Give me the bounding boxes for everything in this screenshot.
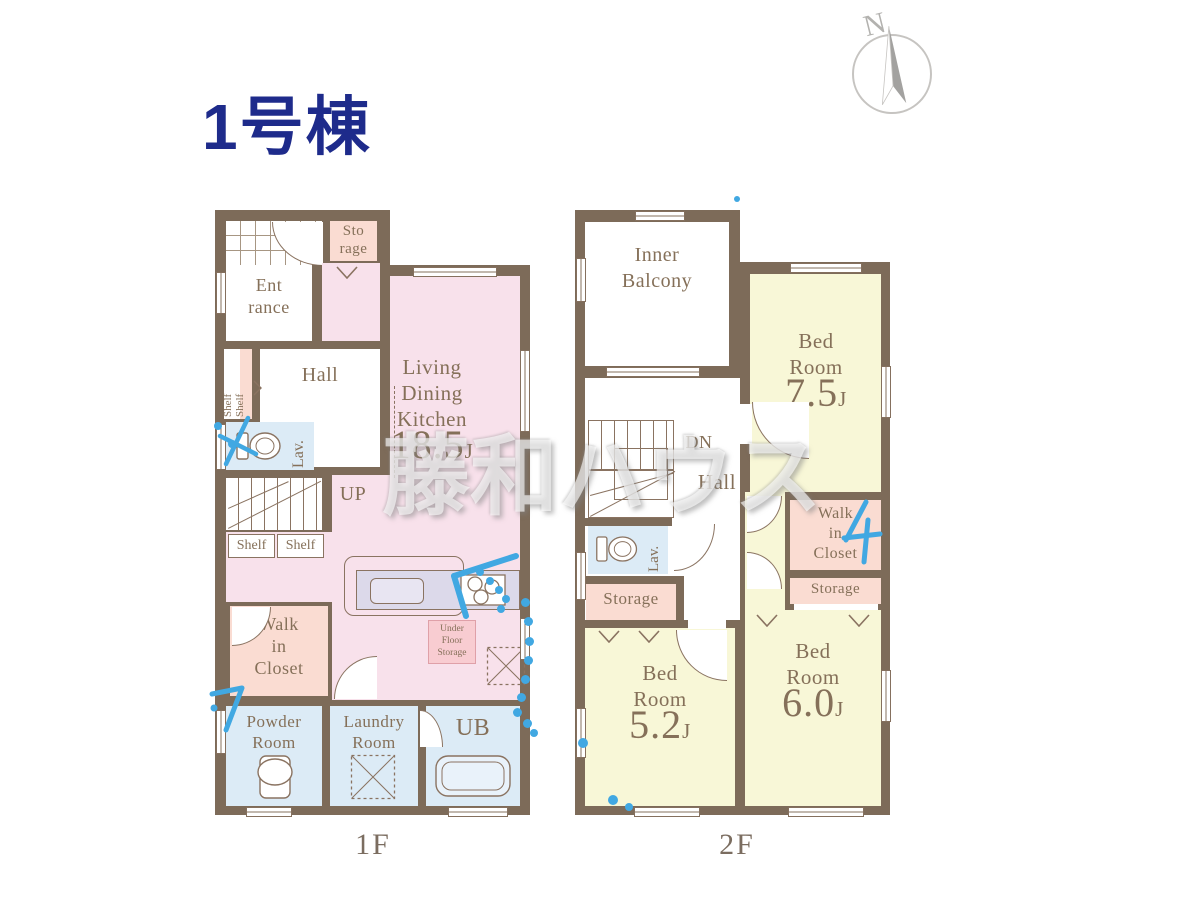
f2-lav-label: Lav. [646,528,663,572]
ink-annotation-four [838,496,888,570]
f2-storage-right: Storage [790,578,881,604]
f2-balcony-line1: Inner [635,244,680,266]
f2-bed1-line1: Bed [798,329,833,353]
f1-ldk-size-unit: J [465,439,474,463]
f1-slider-mark [253,380,263,396]
ink-dot [608,795,618,805]
f2-dn-label: DN [676,432,722,454]
f1-wic-line2: in [271,636,286,656]
f1-window-bottom-ub [448,807,508,817]
f2-balcony-line2: Balcony [622,270,692,292]
ink-dot [523,719,532,728]
f1-window-right-upper [520,350,530,432]
f1-entrance-label-line1: Ent [256,275,283,295]
ink-dot [525,637,534,646]
ink-annotation-seven [206,682,258,736]
f2-storage-left: Storage [586,584,676,620]
f2-window-left-hall [576,552,586,600]
f1-ub-label: UB [440,714,506,743]
f2-bedroom-6-0: Bed Room 6.0J [745,610,881,806]
f1-window-bottom-powder [246,807,292,817]
f1-under-floor-storage: Under Floor Storage [428,620,476,664]
ink-dot [521,675,530,684]
f2-hall-label: Hall [686,470,748,496]
f1-shelf-vertical-label-a: Shelf [222,351,234,417]
f1-ufs-line3: Storage [437,648,466,658]
f1-ldk-label: Living Dining Kitchen 18.5J [352,354,512,464]
f1-laundry-room: Laundry Room [330,706,418,806]
f2-bed2-size-unit: J [682,719,691,743]
ink-annotation-lav [210,412,270,476]
f2-wall-stub [584,518,672,526]
f2-closet-pole-mark [848,614,870,627]
compass-needle-icon [867,21,918,122]
f1-shelf-box-b: Shelf [277,534,324,558]
f2-bed3-line1: Bed [795,639,830,663]
f2-bed3-size-unit: J [835,697,844,721]
f1-up-label: UP [330,482,376,506]
f1-washer-icon [350,754,396,800]
f1-shelf-vertical-label-b: Shelf [234,351,246,417]
ink-dot [625,803,633,811]
f1-ldk-label-line2: Dining [401,381,462,405]
ink-dot [530,729,538,737]
f2-window-bed3-bottom [788,807,864,817]
f2-bed2-line1: Bed [642,661,677,685]
f1-window-left-entrance [216,272,226,314]
f1-sink-icon [250,754,300,802]
f2-bed2-size: 5.2 [629,702,682,747]
f2-window-balcony-bottom [606,367,700,377]
f2-closet-pole-mark [598,630,620,643]
f2-bed3-size: 6.0 [782,680,835,725]
f2-wall-stub [584,576,676,584]
f1-unit-bath: UB [426,706,520,806]
f2-storage-right-label: Storage [790,580,881,598]
f1-window-top [413,267,497,277]
f1-ldk-label-line1: Living [403,355,462,379]
f2-window-bed2-bottom [634,807,700,817]
f2-bed2-door-gap [688,619,726,629]
f1-powder-line2: Room [252,733,296,752]
f1-caption: 1F [340,828,406,862]
f2-window-balcony-top [635,211,685,221]
page-title: 1号棟 [202,76,372,168]
f2-wall-stub [676,576,684,620]
f1-lav-label: Lav. [290,426,308,468]
f1-storage-label-line2: rage [340,241,368,257]
f1-stairs [226,478,322,530]
f2-storage-left-label: Storage [586,589,676,610]
ink-dot [578,738,588,748]
ink-dot [513,708,522,717]
compass: N [846,8,950,124]
f2-stairs-well [614,448,668,500]
f2-window-left-balcony [576,258,586,302]
f1-bathtub-icon [434,754,512,798]
ink-dot [734,196,740,202]
f1-ufs-line1: Under [440,624,464,634]
f1-laundry-line1: Laundry [343,712,404,731]
f1-shelf-box-a: Shelf [228,534,275,558]
f2-toilet-icon [594,530,642,568]
ink-dot [517,693,526,702]
f2-closet-pole-mark [756,614,778,627]
f1-closet-pole-mark [336,266,358,279]
f2-closet-pole-mark [638,630,660,643]
f1-entrance-room: Ent rance [226,265,312,341]
f2-window-bed3-right [881,670,891,722]
f2-inner-balcony: Inner Balcony [585,222,729,366]
f2-window-bed1-top [790,263,862,273]
f1-wall-stub [312,265,322,341]
f2-window-left-bed2 [576,708,586,758]
f1-entrance-label-line2: rance [248,297,289,317]
f2-caption: 2F [704,828,770,862]
ink-annotation-kitchen-arrow [428,546,528,622]
f1-storage-room: Sto rage [330,221,377,261]
ink-dot [524,656,533,665]
floorplan-sheet: 1号棟 N Sto rage Ent rance Shelf Shelf [0,0,1200,900]
f1-ufs-line2: Floor [442,636,463,646]
f2-bedroom-7-5: Bed Room 7.5J [750,274,881,492]
f1-kitchen-sink [370,578,424,604]
f2-bed1-door-gap [738,404,752,444]
f2-window-bed1-right [881,366,891,418]
f1-ldk-size: 18.5 [391,422,465,467]
f1-wic-line3: Closet [254,658,303,678]
f1-storage-label-line1: Sto [343,223,365,239]
f1-laundry-line2: Room [352,733,396,752]
f2-bed1-size-unit: J [838,387,847,411]
